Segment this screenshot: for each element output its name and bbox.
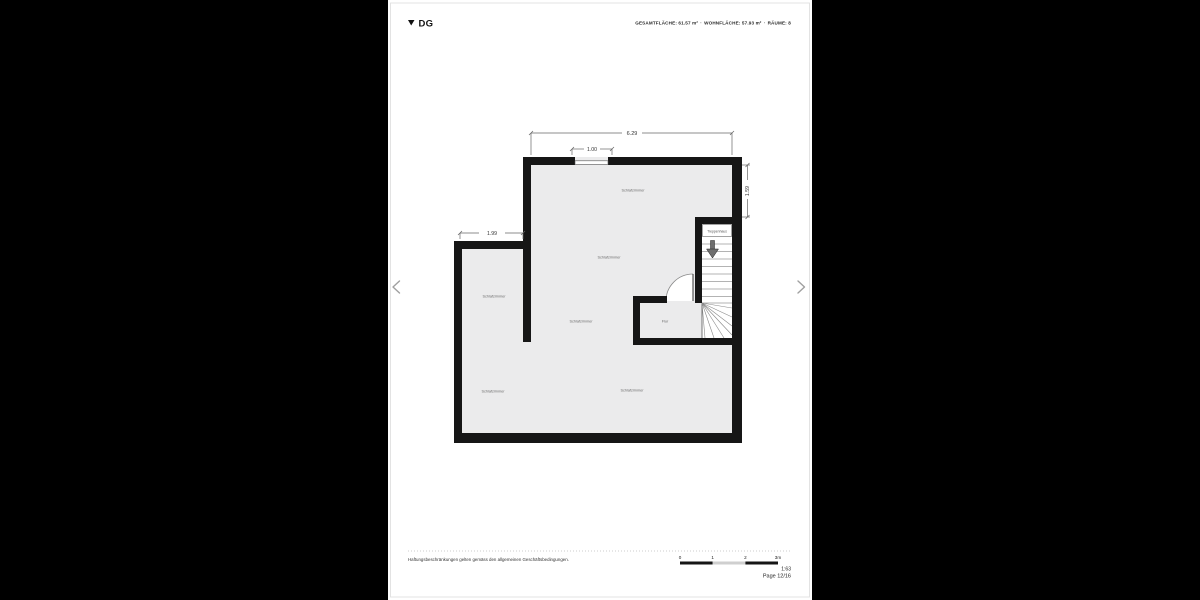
room-label-schlafzimmer-center: Schlafzimmer bbox=[570, 320, 594, 324]
document-page: DG GESAMTFLÄCHE: 61.57 m²·WOHNFLÄCHE: 57… bbox=[388, 0, 812, 600]
floorplan: 6.29 1.00 1.99 bbox=[454, 131, 751, 443]
room-label-schlafzimmer-left: Schlafzimmer bbox=[483, 295, 507, 299]
footer: Haftungsbeschränkungen gelten gemäss den… bbox=[408, 551, 791, 580]
footer-disclaimer: Haftungsbeschränkungen gelten gemäss den… bbox=[408, 557, 569, 562]
page-canvas: DG GESAMTFLÄCHE: 61.57 m²·WOHNFLÄCHE: 57… bbox=[388, 0, 812, 600]
wall-step bbox=[454, 241, 531, 249]
window bbox=[575, 161, 608, 165]
wall-interior-vertical bbox=[523, 157, 531, 342]
dimension-top-width: 6.29 bbox=[627, 131, 638, 137]
chevron-left-icon[interactable] bbox=[393, 281, 400, 293]
room-fill-left bbox=[454, 241, 531, 443]
wall-flur-bottom bbox=[633, 338, 742, 345]
scale-bar-segment-3 bbox=[745, 562, 778, 565]
room-label-schlafzimmer-top: Schlafzimmer bbox=[622, 189, 646, 193]
scale-bar-segment-2 bbox=[713, 562, 746, 565]
dimension-right-height: 1.59 bbox=[745, 186, 751, 196]
scale-bar: 0 1 2 3m bbox=[679, 555, 782, 565]
room-label-flur: Flur bbox=[662, 320, 669, 324]
scale-tick-0: 0 bbox=[679, 555, 682, 560]
stairwell-interior bbox=[702, 224, 732, 338]
wall-bottom bbox=[454, 433, 742, 443]
header: DG GESAMTFLÄCHE: 61.57 m²·WOHNFLÄCHE: 57… bbox=[408, 19, 791, 30]
scale-tick-1: 1 bbox=[711, 555, 714, 560]
wall-right bbox=[732, 157, 742, 443]
floor-marker-icon bbox=[408, 20, 415, 26]
scale-ratio: 1:63 bbox=[781, 567, 791, 573]
wall-flur-left bbox=[633, 296, 640, 345]
page-indicator: Page 12/16 bbox=[763, 574, 791, 580]
room-label-schlafzimmer-middle: Schlafzimmer bbox=[598, 256, 622, 260]
room-label-schlafzimmer-bottom-left: Schlafzimmer bbox=[482, 390, 506, 394]
stat-separator-1: · bbox=[700, 21, 702, 26]
stat-wohnflaeche: WOHNFLÄCHE: 57.93 m² bbox=[704, 20, 762, 26]
scale-tick-3: 3m bbox=[775, 555, 782, 560]
dimension-left-room-width: 1.99 bbox=[487, 231, 497, 237]
stat-raeume: RÄUME: 8 bbox=[768, 20, 792, 26]
room-label-treppenhaus: Treppenhaus bbox=[707, 230, 727, 234]
wall-left-lower bbox=[454, 241, 462, 443]
stat-separator-2: · bbox=[764, 21, 766, 26]
chevron-right-icon[interactable] bbox=[798, 281, 805, 293]
header-stats: GESAMTFLÄCHE: 61.57 m²·WOHNFLÄCHE: 57.93… bbox=[635, 20, 791, 26]
wall-stairwell-left bbox=[695, 217, 702, 303]
scale-bar-segment-1 bbox=[680, 562, 713, 565]
scale-tick-2: 2 bbox=[744, 555, 747, 560]
stat-gesamtflaeche: GESAMTFLÄCHE: 61.57 m² bbox=[635, 20, 698, 26]
room-label-schlafzimmer-bottom-center: Schlafzimmer bbox=[621, 389, 645, 393]
floor-label: DG bbox=[419, 19, 434, 30]
wall-top-right-segment bbox=[608, 157, 740, 165]
dimension-window-width: 1.00 bbox=[587, 147, 597, 153]
